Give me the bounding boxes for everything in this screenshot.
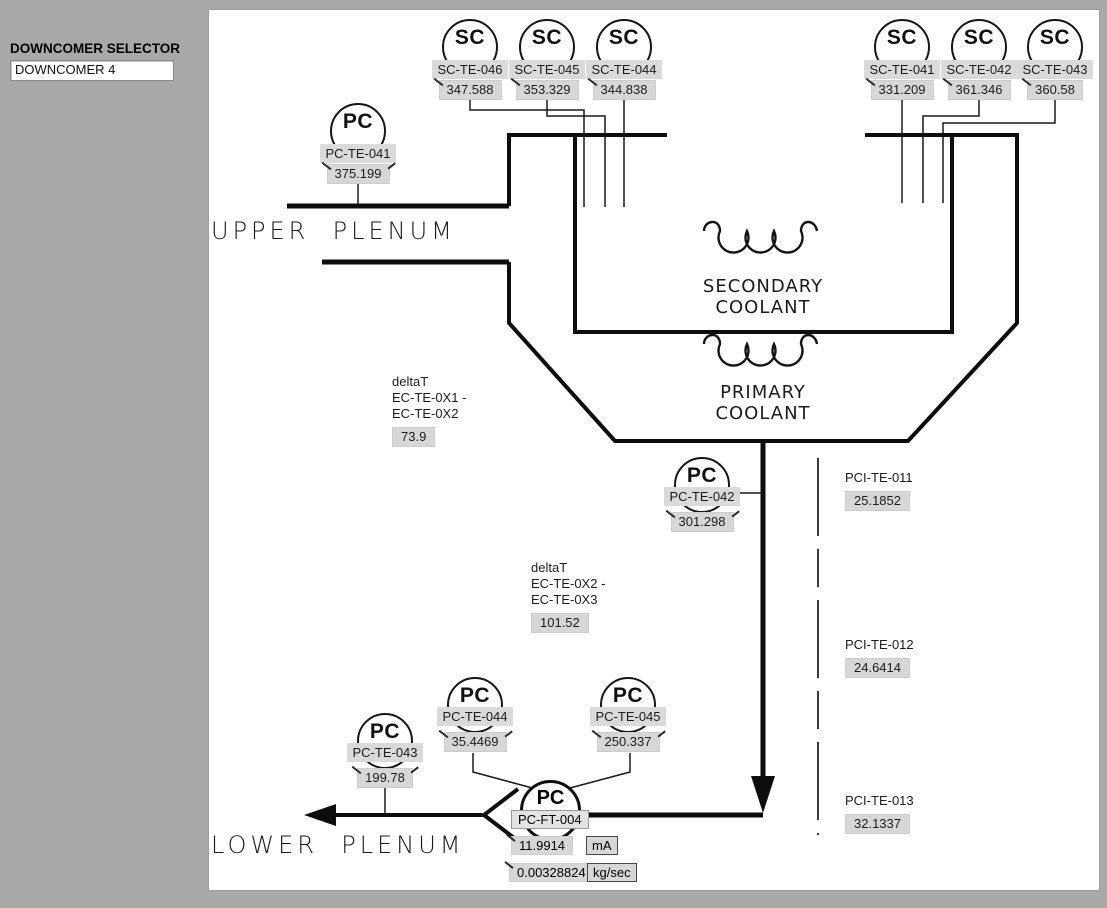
delta-t-tag-b: EC-TE-0X3 (531, 592, 605, 608)
pci-tag: PCI-TE-012 (845, 637, 914, 653)
delta-t-label: deltaT (531, 560, 605, 576)
secondary-coolant-label: SECONDARY COOLANT (653, 276, 873, 318)
sensor-tag: PC-TE-041 (320, 144, 395, 163)
delta-t-label: deltaT (392, 374, 466, 390)
pci-value: 24.6414 (845, 658, 910, 678)
sensor-value: 250.337 (597, 732, 660, 752)
pci-te-012-block: PCI-TE-012 24.6414 (845, 637, 914, 678)
sensor-tag: PC-TE-042 (664, 487, 739, 506)
pci-tag: PCI-TE-011 (845, 470, 913, 486)
app-window: DOWNCOMER SELECTOR DOWNCOMER 4 (0, 0, 1107, 908)
diagram-lines (0, 0, 1107, 908)
sensor-value: 375.199 (327, 164, 390, 184)
flow-rate-unit: kg/sec (587, 863, 637, 882)
sensor-value: 301.298 (671, 512, 734, 532)
down-arrow-icon (751, 776, 775, 813)
sensor-tag: SC-TE-043 (1017, 60, 1092, 79)
left-arrow-icon (304, 804, 336, 826)
sensor-tag: SC-TE-046 (432, 60, 507, 79)
sensor-pc-te-041: PC PC-TE-041 375.199 (303, 103, 413, 184)
lead-sc-te-043 (943, 99, 1055, 203)
sensor-value: 360.58 (1027, 80, 1083, 100)
sensor-tag: SC-TE-042 (941, 60, 1016, 79)
sensor-tag: SC-TE-045 (509, 60, 584, 79)
sensor-pc-ft-004: PC PC-FT-004 11.9914 mA 0.00328824 kg/se… (489, 780, 659, 890)
delta-t-value: 73.9 (392, 427, 435, 447)
pci-tag: PCI-TE-013 (845, 793, 914, 809)
delta-t-block-2: deltaT EC-TE-0X2 - EC-TE-0X3 101.52 (531, 560, 605, 633)
pci-value: 25.1852 (845, 491, 910, 511)
sensor-value: 353.329 (516, 80, 579, 100)
secondary-coil-icon (704, 222, 817, 253)
sensor-tag: PC-TE-045 (590, 707, 665, 726)
lower-plenum-label: LOWER PLENUM (211, 831, 464, 859)
delta-t-tag-a: EC-TE-0X2 - (531, 576, 605, 592)
sensor-tag: SC-TE-044 (586, 60, 661, 79)
sensor-tag: PC-TE-043 (347, 743, 422, 762)
flow-current-value: 11.9914 (511, 836, 573, 855)
sensor-tag: SC-TE-041 (864, 60, 939, 79)
sensor-value: 344.838 (593, 80, 656, 100)
sensor-value: 347.588 (439, 80, 502, 100)
vessel-shell-left (509, 135, 667, 206)
delta-t-value: 101.52 (531, 613, 589, 633)
flow-rate-value: 0.00328824 (509, 863, 594, 882)
delta-t-tag-a: EC-TE-0X1 - (392, 390, 466, 406)
pci-value: 32.1337 (845, 814, 910, 834)
pci-te-013-block: PCI-TE-013 32.1337 (845, 793, 914, 834)
sensor-value: 361.346 (948, 80, 1011, 100)
sensor-pc-te-043: PC PC-TE-043 199.78 (330, 713, 440, 788)
delta-t-block-1: deltaT EC-TE-0X1 - EC-TE-0X2 73.9 (392, 374, 466, 447)
sensor-pc-te-045: PC PC-TE-045 250.337 (573, 677, 683, 752)
sensor-value: 331.209 (871, 80, 934, 100)
primary-coolant-label: PRIMARY COOLANT (653, 382, 873, 424)
sensor-value: 35.4469 (444, 732, 507, 752)
sensor-pc-te-042: PC PC-TE-042 301.298 (647, 457, 757, 532)
sensor-tag: PC-TE-044 (437, 707, 512, 726)
lead-sc-te-046 (470, 99, 584, 207)
pci-te-011-block: PCI-TE-011 25.1852 (845, 470, 913, 511)
sensor-tag: PC-FT-004 (511, 810, 589, 829)
primary-coil-icon (704, 335, 817, 366)
sensor-value: 199.78 (357, 768, 413, 788)
delta-t-tag-b: EC-TE-0X2 (392, 406, 466, 422)
sensor-sc-te-044: SC SC-TE-044 344.838 (569, 19, 679, 100)
flow-current-unit: mA (586, 836, 618, 855)
upper-plenum-label: UPPER PLENUM (211, 217, 456, 245)
